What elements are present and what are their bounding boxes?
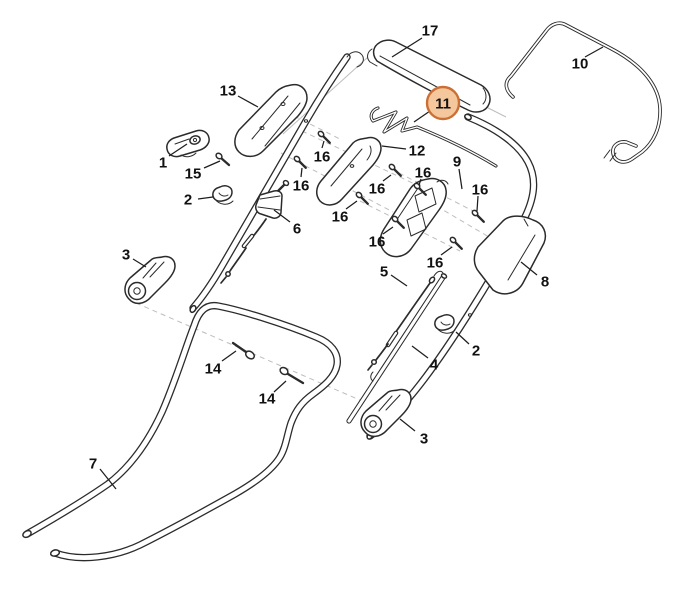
callout-16-16[interactable]: 16	[427, 247, 452, 272]
part-9-switch-housing[interactable]	[380, 179, 448, 257]
callout-leader-line	[274, 381, 286, 392]
part-number-label[interactable]: 3	[420, 431, 428, 448]
callout-5-19[interactable]: 5	[380, 264, 407, 287]
part-3-cam-lever-upper[interactable]	[125, 256, 175, 303]
callout-16-12[interactable]: 16	[332, 201, 357, 226]
part-number-label[interactable]: 8	[541, 274, 549, 291]
part-number-label[interactable]: 10	[572, 56, 589, 73]
part-number-label[interactable]: 16	[369, 234, 386, 251]
part-15-screw[interactable]	[215, 152, 229, 165]
callout-12-8[interactable]: 12	[382, 143, 425, 160]
callout-3-22[interactable]: 3	[400, 419, 428, 448]
part-13-handle-cover-left[interactable]	[235, 85, 307, 157]
parts-diagram: 1710131152631291616161616161616854237141…	[0, 0, 678, 594]
callout-2-5[interactable]: 2	[184, 192, 213, 209]
part-number-label[interactable]: 1	[159, 155, 167, 172]
part-number-label[interactable]: 14	[259, 391, 276, 408]
part-number-label[interactable]: 12	[409, 143, 426, 160]
callout-15-4[interactable]: 15	[185, 161, 220, 183]
callout-13-2[interactable]: 13	[220, 83, 258, 108]
callout-leader-line	[222, 351, 236, 361]
part-number-label[interactable]: 17	[422, 23, 439, 40]
callout-leader-line	[459, 169, 462, 189]
part-number-label[interactable]: 16	[332, 209, 349, 226]
part-7-lower-handle-bar[interactable]	[22, 306, 338, 558]
callout-leader-line	[400, 419, 415, 431]
part-number-label[interactable]: 7	[89, 456, 97, 473]
part-14-carriage-bolts[interactable]	[233, 343, 303, 383]
callout-10-1[interactable]: 10	[572, 47, 603, 73]
part-10-wire-bail[interactable]	[506, 23, 660, 162]
callout-16-10[interactable]: 16	[314, 141, 331, 166]
callout-leader-line	[198, 197, 213, 199]
callout-14-25[interactable]: 14	[259, 381, 286, 408]
part-number-label[interactable]: 16	[427, 255, 444, 272]
callout-14-24[interactable]: 14	[205, 351, 236, 378]
callout-4-20[interactable]: 4	[412, 346, 439, 374]
part-number-label[interactable]: 16	[293, 178, 310, 195]
part-number-label[interactable]: 15	[185, 166, 202, 183]
callout-leader-line	[391, 275, 407, 286]
callout-leader-line	[412, 346, 428, 358]
callout-16-15[interactable]: 16	[472, 182, 489, 212]
callout-leader-line	[133, 259, 146, 267]
part-number-label[interactable]: 16	[314, 149, 331, 166]
highlighted-callout: 11	[414, 87, 459, 122]
part-2-clamp-lower[interactable]	[435, 315, 455, 333]
part-number-label[interactable]: 16	[369, 181, 386, 198]
part-number-label[interactable]: 16	[415, 165, 432, 182]
callout-16-11[interactable]: 16	[293, 168, 310, 195]
part-number-label[interactable]: 9	[453, 154, 461, 171]
callout-leader-line	[204, 161, 220, 168]
callout-leader-line	[456, 332, 469, 344]
callout-leader-line	[382, 146, 406, 149]
part-number-label[interactable]: 16	[472, 182, 489, 199]
callout-16-13[interactable]: 16	[369, 175, 391, 198]
part-number-label[interactable]: 2	[472, 343, 480, 360]
part-number-label[interactable]: 6	[293, 221, 301, 238]
part-number-label[interactable]: 4	[430, 357, 439, 374]
callout-leader-line	[322, 141, 324, 148]
part-number-label[interactable]: 2	[184, 192, 192, 209]
callout-leader-line	[238, 96, 258, 107]
callout-9-9[interactable]: 9	[453, 154, 462, 190]
part-number-label[interactable]: 5	[380, 264, 388, 281]
highlight-leader-line	[414, 111, 430, 122]
part-number-label[interactable]: 3	[122, 247, 130, 264]
callout-leader-line	[301, 168, 302, 177]
part-3-cam-lever-lower[interactable]	[361, 389, 411, 436]
callout-3-7[interactable]: 3	[122, 247, 146, 268]
highlighted-part-number[interactable]: 11	[435, 96, 451, 113]
part-number-label[interactable]: 13	[220, 83, 237, 100]
callout-2-21[interactable]: 2	[456, 332, 480, 360]
exploded-view-drawing: 1710131152631291616161616161616854237141…	[0, 0, 678, 594]
part-2-clamp-upper[interactable]	[213, 186, 233, 204]
part-number-label[interactable]: 14	[205, 361, 222, 378]
